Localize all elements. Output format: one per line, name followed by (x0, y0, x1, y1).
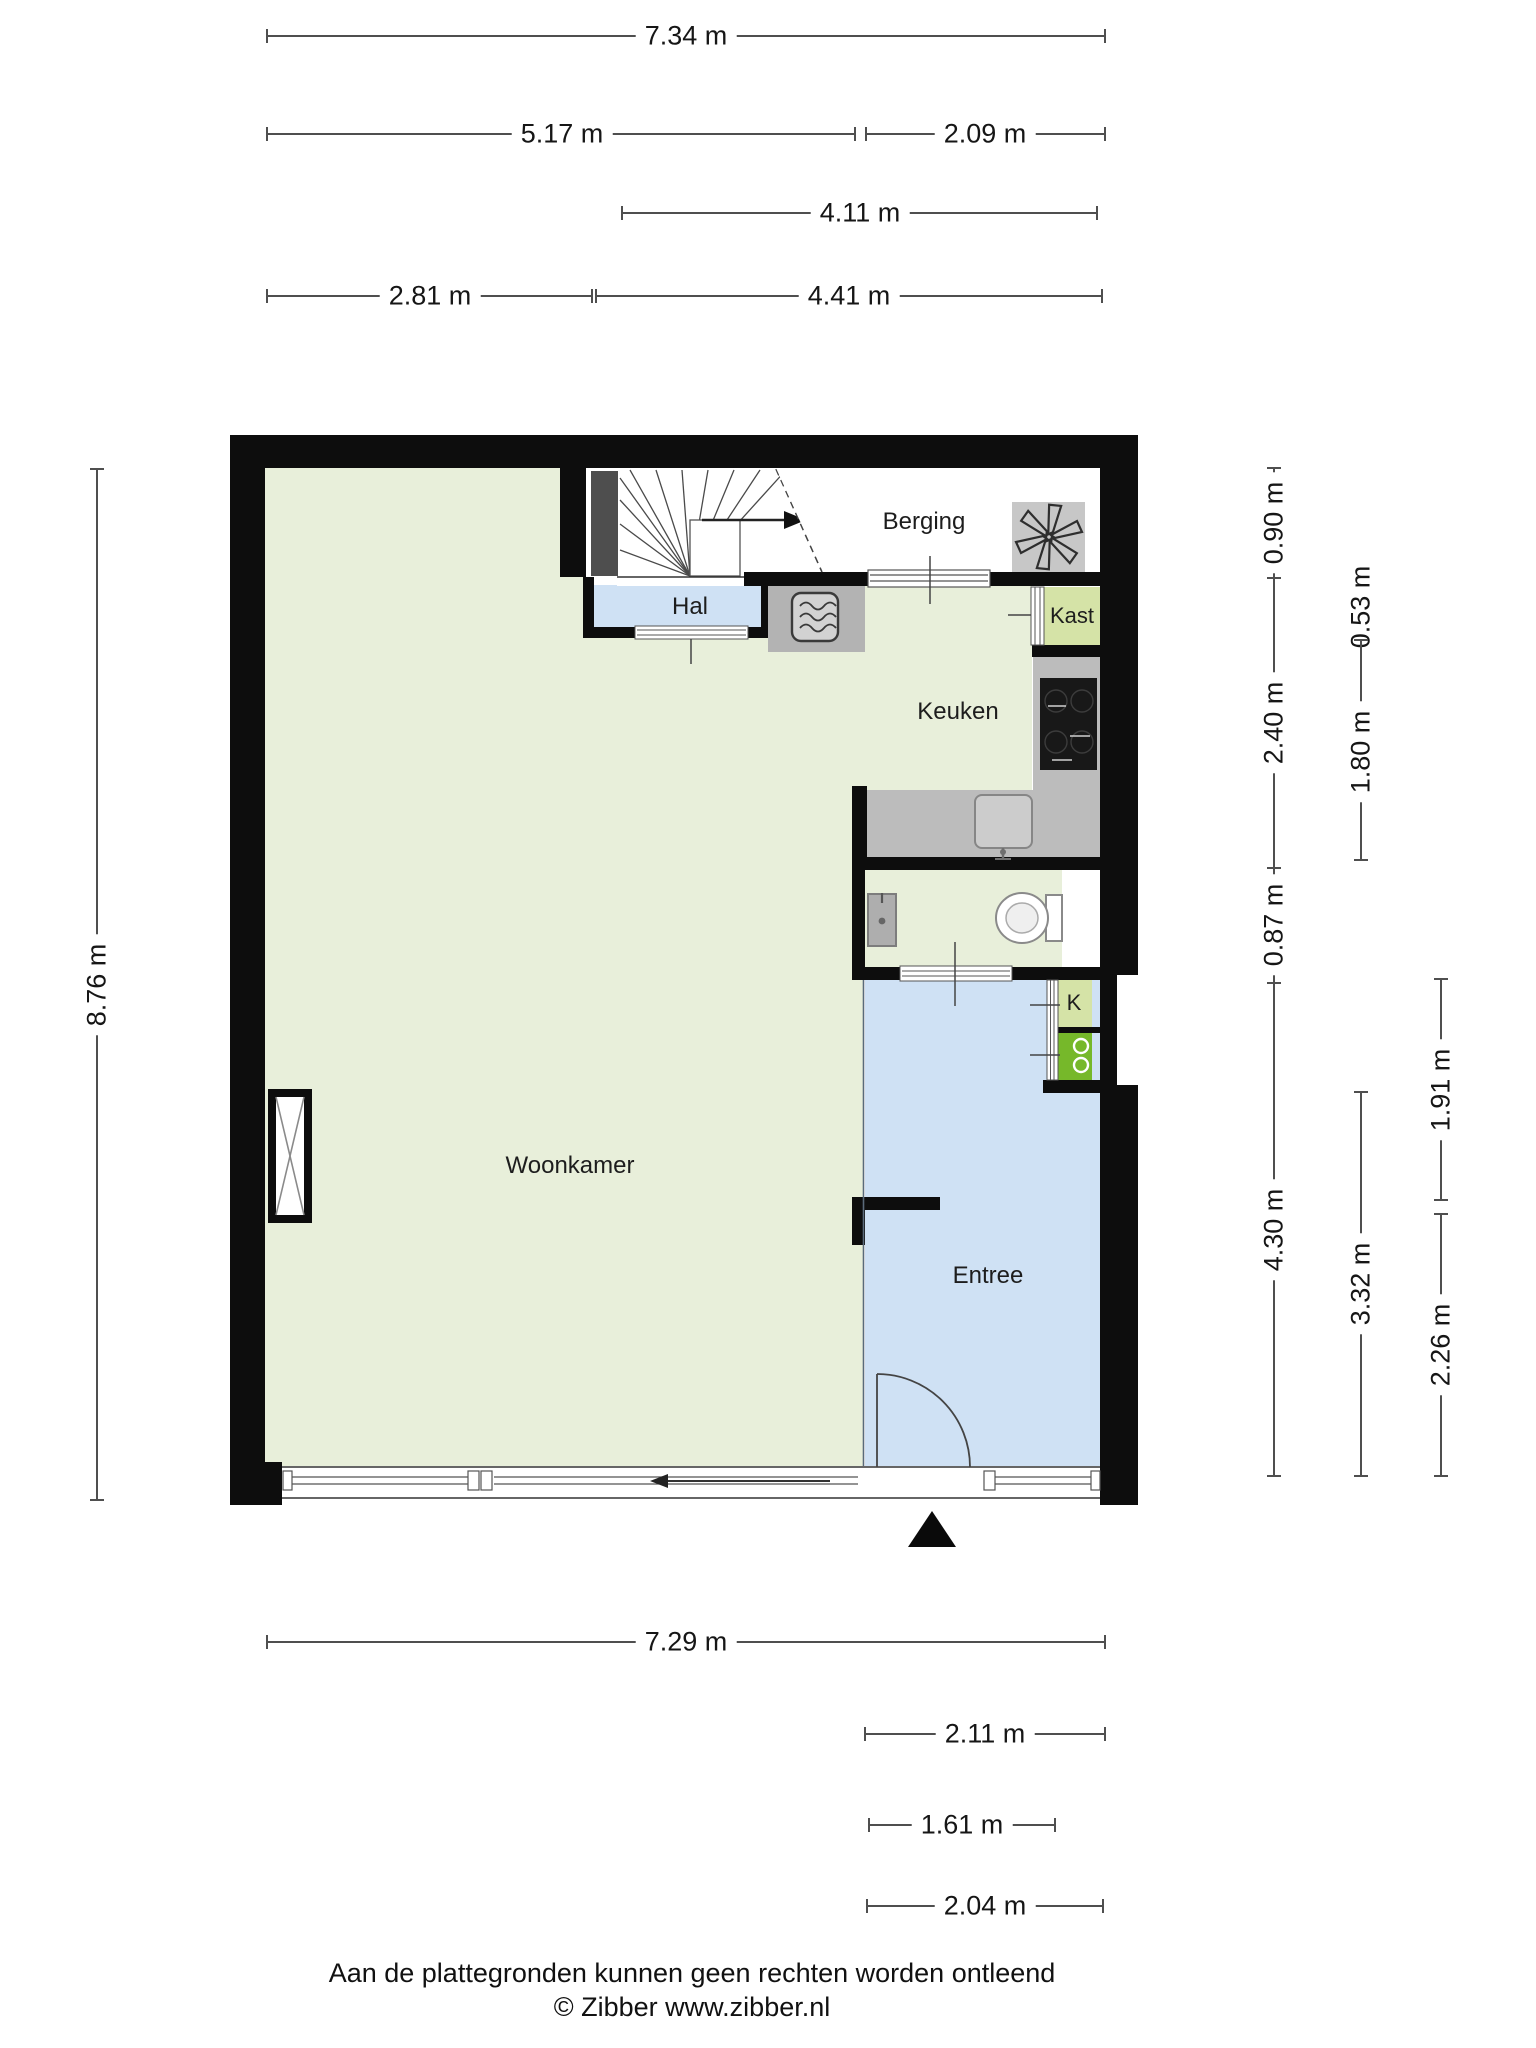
dim-label-b-204: 2.04 m (935, 1891, 1036, 1922)
wall-k-washer (1057, 1027, 1100, 1033)
wall-kast-south (1032, 645, 1100, 657)
stairs-area (617, 468, 823, 577)
room-label-hal: Hal (672, 593, 708, 621)
washbasin (867, 893, 897, 947)
room-label-kast: Kast (1050, 603, 1094, 629)
room-woonkamer-floor (265, 468, 560, 1467)
washing-machine-box (1057, 1033, 1092, 1080)
toilet-recess (1062, 872, 1100, 967)
wall-toilet-west (852, 870, 865, 980)
wall-entree-stub-v (852, 1197, 865, 1245)
dim-label-r-090: 0.90 m (1259, 473, 1290, 574)
dim-label-b-211: 2.11 m (936, 1719, 1035, 1750)
dim-label-r-180: 1.80 m (1346, 702, 1377, 803)
window-band-bottom (282, 1466, 1100, 1500)
entrance-triangle-icon (908, 1511, 956, 1547)
dim-label-b-729: 7.29 m (636, 1627, 737, 1658)
dim-label-r-240: 2.40 m (1259, 673, 1290, 774)
dim-label-row4-left: 2.81 m (380, 281, 481, 312)
wall-toilet-entree (852, 967, 1100, 980)
wall-corner-bl (230, 1462, 282, 1505)
dim-label-top-right: 2.09 m (935, 119, 1036, 150)
wall-keuken-toilet (852, 857, 1100, 870)
footer-disclaimer: Aan de plattegronden kunnen geen rechten… (329, 1958, 1056, 1989)
kitchen-counter-bottom (867, 790, 1033, 857)
dim-label-r-332: 3.32 m (1346, 1234, 1377, 1335)
dim-label-b-161: 1.61 m (912, 1810, 1013, 1841)
room-label-k: K (1067, 990, 1082, 1016)
wall-hal-east (761, 585, 768, 627)
wall-washer-south (1043, 1080, 1100, 1093)
dim-label-top-left: 5.17 m (512, 119, 613, 150)
duct-inner (276, 1097, 304, 1215)
wall-right-notch (1117, 975, 1138, 1085)
dim-label-top-mid: 4.11 m (811, 198, 910, 229)
dim-label-r-191: 1.91 m (1426, 1040, 1457, 1141)
dim-label-r-087: 0.87 m (1259, 875, 1290, 976)
wall-hal-band-stub-right (748, 627, 768, 638)
room-label-woonkamer: Woonkamer (506, 1152, 635, 1180)
dim-label-top-total: 7.34 m (636, 21, 737, 52)
room-label-entree: Entree (953, 1262, 1024, 1290)
dim-label-r-430: 4.30 m (1259, 1180, 1290, 1281)
wall-hal-west (583, 577, 594, 638)
dim-label-row4-right: 4.41 m (799, 281, 900, 312)
wall-left (230, 435, 265, 1505)
wall-berging-south (744, 572, 1100, 586)
room-label-berging: Berging (883, 508, 966, 536)
floorplan-page: Woonkamer Keuken Berging Hal Kast Entree… (0, 0, 1536, 2048)
wall-entree-stub-h (863, 1197, 940, 1210)
stairs-gray-strip (591, 471, 618, 576)
cooktop (1040, 678, 1097, 770)
wall-stairs-west (560, 468, 586, 577)
room-label-keuken: Keuken (917, 698, 998, 726)
wall-right (1100, 435, 1138, 1505)
dim-label-left-total: 8.76 m (82, 935, 113, 1036)
room-woonkamer-floor (560, 577, 583, 638)
understair-strip (617, 573, 744, 586)
fan-box (1012, 502, 1085, 572)
dim-label-r-226: 2.26 m (1426, 1295, 1457, 1396)
microwave-counter (768, 585, 865, 652)
wall-top (230, 435, 1138, 468)
wall-hal-band-stub-left (594, 627, 635, 638)
room-keuken-floor (865, 586, 1032, 652)
footer-copyright: © Zibber www.zibber.nl (554, 1992, 831, 2023)
